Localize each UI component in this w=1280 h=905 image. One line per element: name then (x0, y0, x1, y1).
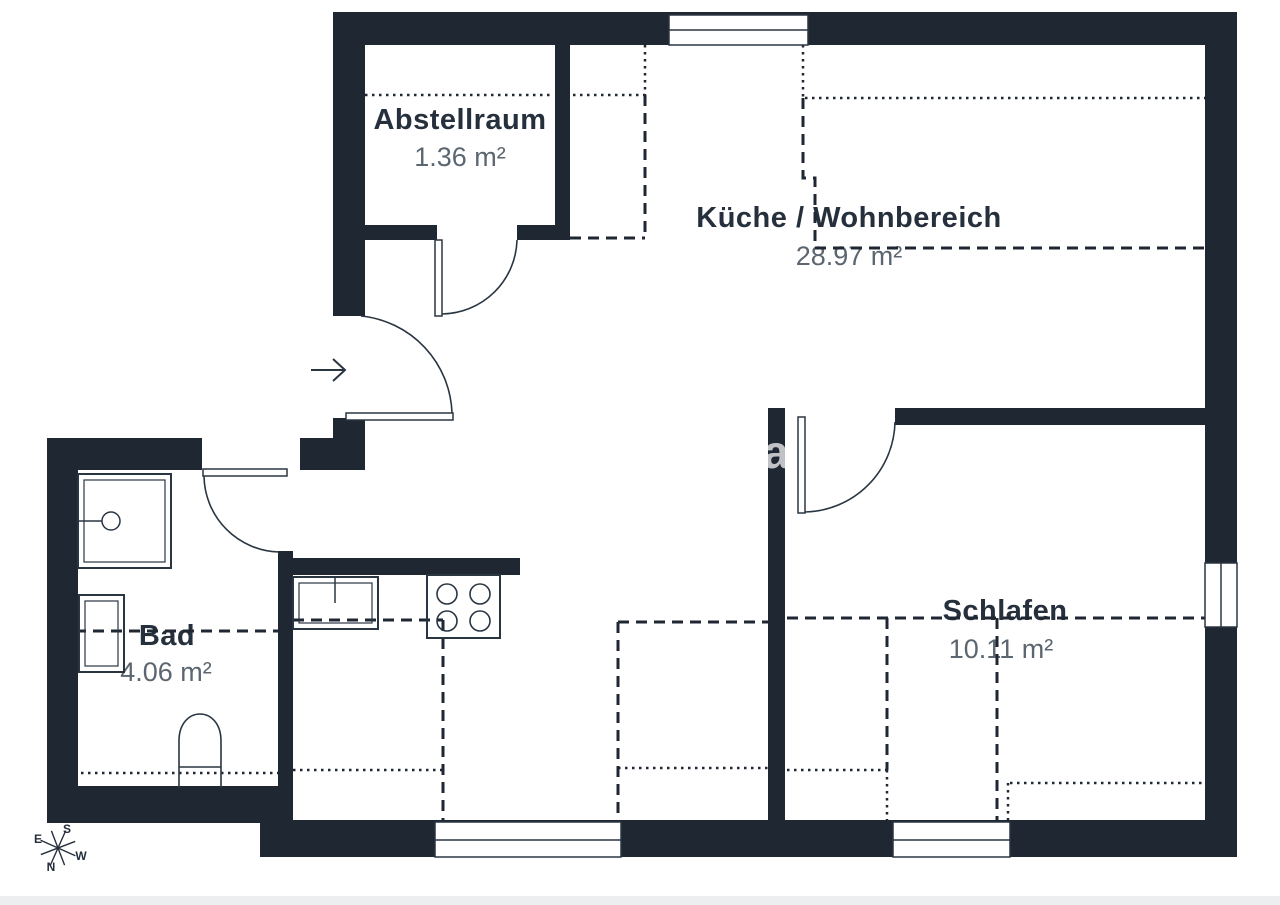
room-area-bad: 4.06 m² (120, 657, 212, 687)
door-leaf (203, 469, 287, 476)
door-swing-arc (442, 240, 517, 314)
compass-east: E (34, 832, 42, 846)
floorplan-page: Abstellraum 1.36 m² Küche / Wohnbereich … (0, 0, 1280, 905)
wall-segment-bath-top-right (300, 438, 365, 470)
compass-south: S (63, 822, 71, 836)
wall-segment-bedroom-top (895, 408, 1205, 425)
room-name-abstellraum: Abstellraum (373, 104, 546, 136)
room-area-schlafen: 10.11 m² (949, 634, 1054, 664)
washbasin (79, 595, 124, 672)
wall-segment-right (1205, 12, 1237, 857)
wall-segment-bath-bottom (47, 786, 292, 823)
stove (427, 575, 500, 638)
page-footer-strip (0, 896, 1280, 905)
compass-north: N (47, 860, 56, 874)
room-labels: Abstellraum 1.36 m² Küche / Wohnbereich … (120, 104, 1067, 687)
wall-segment-bath-left (47, 438, 78, 823)
wall-segment-left-upper (333, 12, 365, 316)
dotted-ceiling-lines (60, 45, 1205, 822)
window-bottom-right (893, 822, 1010, 857)
door-bath (203, 469, 287, 552)
room-area-abstellraum: 1.36 m² (414, 142, 506, 172)
shower-head (102, 512, 120, 530)
door-swing-arc (805, 422, 895, 512)
compass-rose: S E W N (33, 822, 87, 874)
window-top (669, 15, 808, 45)
door-swing-arc (204, 476, 279, 552)
toilet (179, 714, 221, 788)
door-leaf (346, 413, 453, 420)
wall-segment-bottom (260, 820, 1237, 857)
room-area-kueche: 28.97 m² (796, 241, 903, 271)
window-right (1205, 563, 1237, 627)
watermark-letter: a (763, 426, 789, 478)
wall-segment-storage-bottom-left (365, 225, 437, 240)
door-entry (346, 316, 453, 420)
walls (47, 12, 1237, 857)
room-label-kueche-wohnbereich: Küche / Wohnbereich 28.97 m² (696, 202, 1001, 271)
wall-segment-storage-bottom-right (517, 225, 570, 240)
door-bedroom (798, 417, 895, 513)
window-bottom-left (435, 822, 621, 857)
door-swing-arc (361, 316, 452, 413)
door-leaf (798, 417, 805, 513)
door-storage (435, 240, 517, 316)
shower (78, 474, 171, 568)
wall-segment-kitchen-counter (278, 558, 520, 575)
burner (437, 584, 457, 604)
burner (470, 611, 490, 631)
room-label-abstellraum: Abstellraum 1.36 m² (373, 104, 546, 172)
burner (470, 584, 490, 604)
room-name-schlafen: Schlafen (943, 595, 1068, 627)
wall-segment-storage-right (555, 12, 570, 240)
room-name-kueche: Küche / Wohnbereich (696, 202, 1001, 234)
doors (203, 240, 895, 552)
compass-star (33, 823, 83, 873)
dashed-ceiling-lines (75, 95, 1205, 822)
room-name-bad: Bad (139, 620, 195, 652)
compass-west: W (75, 849, 87, 863)
wall-segment-bath-right (278, 551, 293, 823)
floorplan-drawing: Abstellraum 1.36 m² Küche / Wohnbereich … (0, 0, 1280, 905)
door-leaf (435, 240, 442, 316)
room-label-schlafen: Schlafen 10.11 m² (943, 595, 1068, 664)
entry-arrow-icon (311, 359, 345, 381)
